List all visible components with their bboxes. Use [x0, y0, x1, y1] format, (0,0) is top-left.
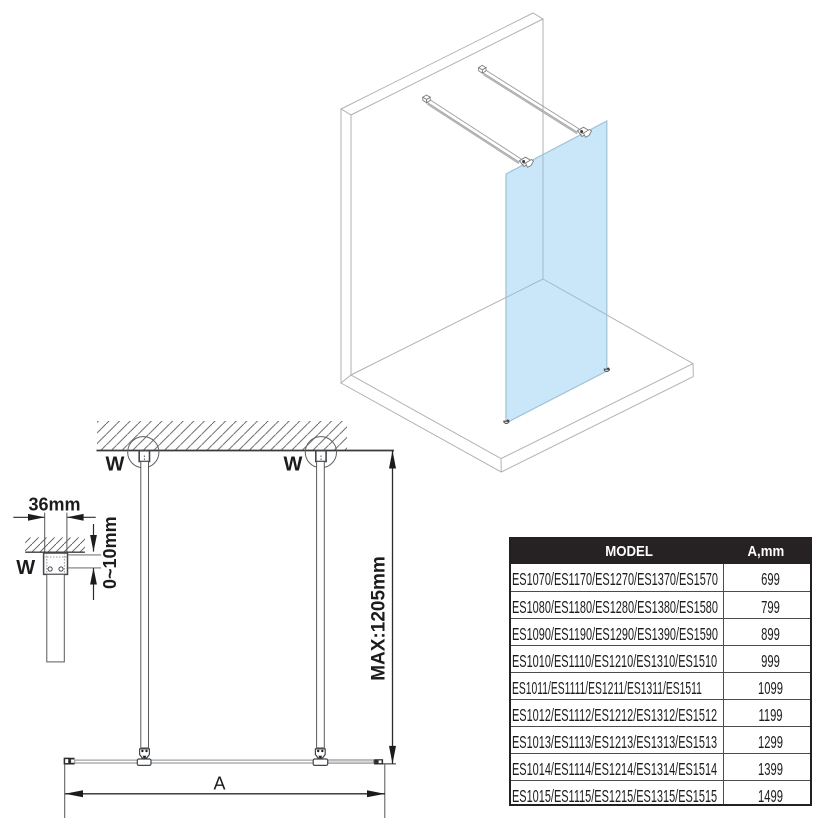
svg-text:W: W — [105, 454, 124, 476]
svg-text:W: W — [16, 557, 35, 579]
svg-text:MAX:1205mm: MAX:1205mm — [369, 556, 390, 681]
svg-text:A: A — [213, 774, 225, 794]
svg-text:36mm: 36mm — [28, 495, 80, 515]
svg-text:0~10mm: 0~10mm — [100, 516, 120, 589]
svg-text:W: W — [284, 454, 303, 476]
